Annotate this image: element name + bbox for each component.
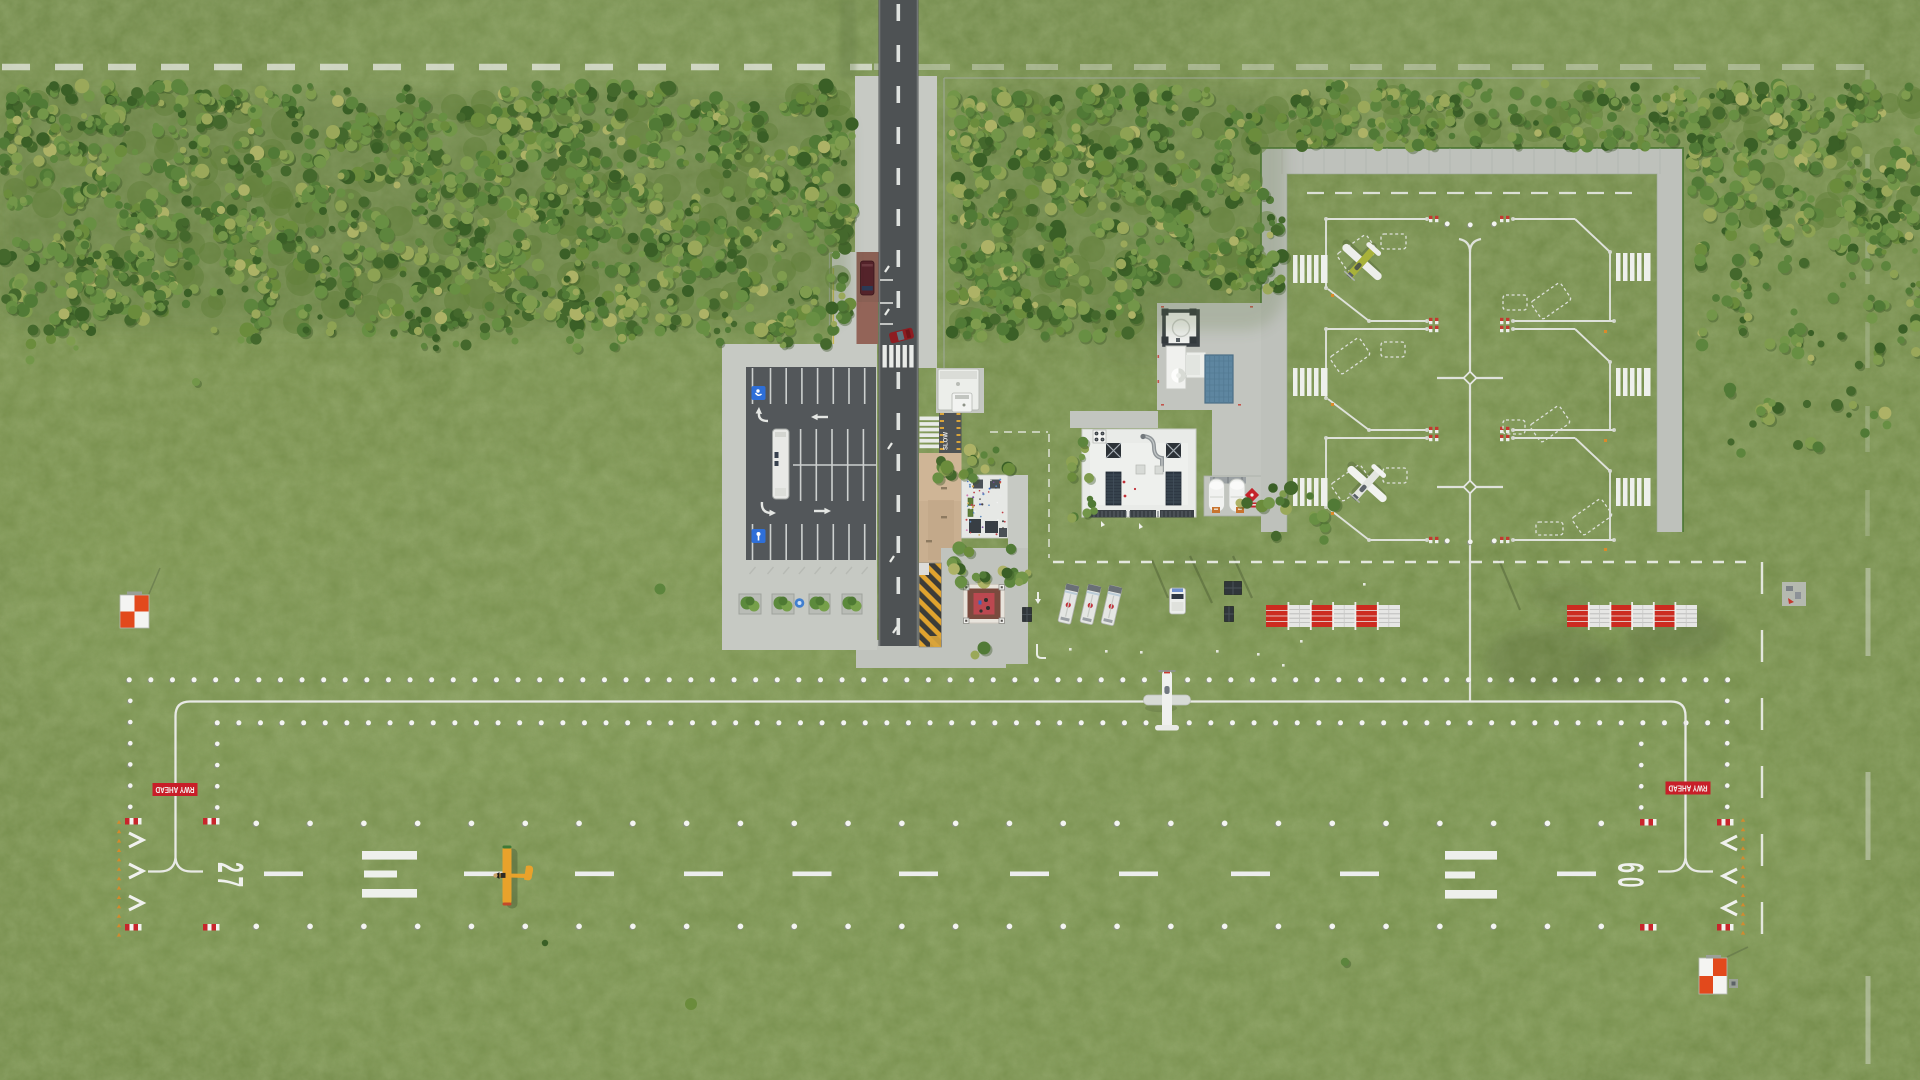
svg-text:RWY AHEAD: RWY AHEAD [155, 785, 194, 794]
svg-text:RWY AHEAD: RWY AHEAD [1668, 784, 1707, 793]
svg-text:9: 9 [1612, 862, 1652, 872]
svg-text:0: 0 [1612, 877, 1652, 887]
svg-text:2: 2 [209, 862, 249, 872]
svg-text:SLOW: SLOW [944, 432, 950, 450]
svg-text:7: 7 [209, 877, 249, 887]
